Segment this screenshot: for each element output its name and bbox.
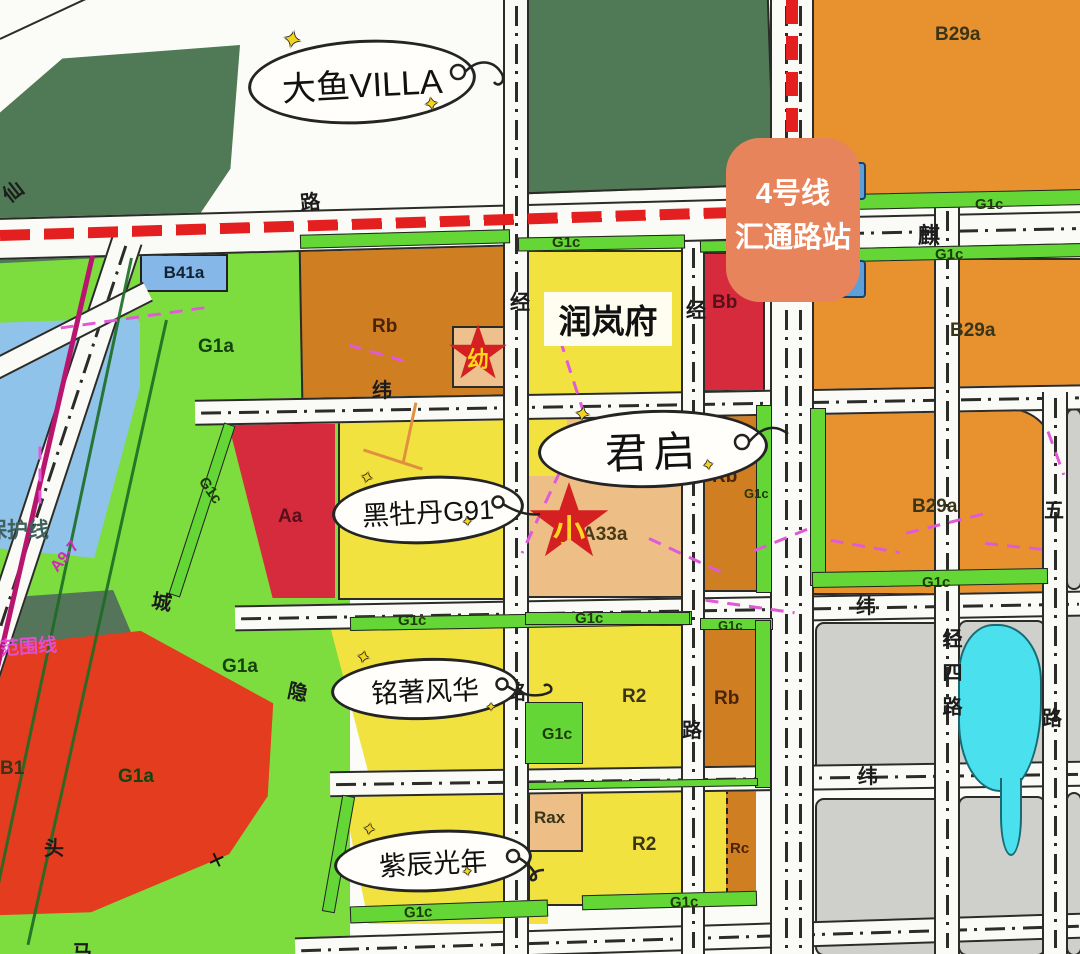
badge-line2: 汇通路站 <box>726 216 860 260</box>
road-char-jing-v1: 经 <box>510 286 530 315</box>
road-char-jing-v2: 经 <box>686 294 706 323</box>
bubble-dayu-villa-text: 大鱼VILLA <box>281 53 444 110</box>
parcel-label-r2-row4: R2 <box>632 834 656 856</box>
bubble-connector <box>490 490 546 526</box>
strip-label-g1c: G1c <box>975 196 1003 213</box>
note-fanweixian: 范围线 <box>0 630 58 661</box>
bubble-connector <box>494 668 556 708</box>
metro-station-badge: 4号线 汇通路站 <box>726 138 860 302</box>
road-char-lu-v5: 路 <box>1042 702 1062 731</box>
strip-g1c-r2-row3-top <box>525 612 690 625</box>
pond <box>958 624 1042 792</box>
road-char-wei-3: 纬 <box>858 760 878 789</box>
road-char-lu-v2: 路 <box>682 714 702 743</box>
parcel-label-g1a-mid: G1a <box>222 656 258 678</box>
road-v2 <box>681 242 705 954</box>
strip-g1c-b29a-row2-left <box>810 408 826 586</box>
parcel-label-b29a-top: B29a <box>935 24 980 46</box>
zoning-map: B41a <box>0 0 1080 954</box>
road-v5 <box>1042 392 1068 954</box>
bubble-mingzhu-text: 铭著风华 <box>370 668 479 711</box>
road-v1 <box>503 0 529 954</box>
strip-g1c-rb-row3-right <box>755 620 771 788</box>
metro-line4-dashes-north <box>786 0 798 146</box>
parcel-label-rb-topleft: Rb <box>372 316 397 338</box>
parcel-gray-sliver-row3 <box>1066 595 1080 771</box>
strip-label-g1c: G1c <box>404 904 433 922</box>
note-baohuxian: 保护线 <box>0 514 49 544</box>
label-box-runlanfu: 润岚府 <box>544 292 672 346</box>
bubble-connector <box>504 840 568 884</box>
parcel-label-rc: Rc <box>730 840 749 857</box>
strip-label-g1c: G1c <box>542 726 572 744</box>
parcel-label-g1a-top: G1a <box>198 336 234 358</box>
strip-label-g1c: G1c <box>575 610 603 627</box>
parcel-label-r2-row3: R2 <box>622 686 646 708</box>
bubble-connector <box>448 54 512 96</box>
road-name-jingsilu: 经四路 <box>936 628 965 730</box>
parcel-gray-sliver-row2 <box>1066 408 1080 590</box>
road-char-wu: 五 <box>1044 494 1064 523</box>
road-char-qi: 麒 <box>918 218 940 250</box>
strip-label-g1c: G1c <box>670 894 699 912</box>
parcel-gray-1 <box>815 622 950 774</box>
strip-label-g1c: G1c <box>398 612 426 629</box>
boundary-dash <box>39 447 42 507</box>
badge-line1: 4号线 <box>726 172 860 216</box>
road-centerline <box>515 6 518 948</box>
sparkle-icon: ✦ <box>423 93 441 116</box>
strip-label-g1c: G1c <box>922 574 950 591</box>
parcel-label-rax: Rax <box>534 808 565 828</box>
strip-label-g1c: G1c <box>744 486 769 501</box>
road-char-wei-1: 纬 <box>372 374 392 403</box>
road-char-tou: 头 <box>44 832 64 861</box>
parcel-label-rb-row3: Rb <box>714 688 739 710</box>
bubble-heimudan-text: 黑牡丹G91 <box>361 487 495 533</box>
road-char-ma: 马 <box>72 936 92 954</box>
road-centerline <box>1054 398 1057 948</box>
label-runlanfu-text: 润岚府 <box>559 295 658 343</box>
bubble-junqi-text: 君启 <box>604 417 702 481</box>
bubble-connector <box>732 418 792 458</box>
strip-label-g1c: G1c <box>718 618 743 633</box>
road-char-wei-2: 纬 <box>856 590 876 619</box>
strip-label-g1c: G1c <box>552 234 580 251</box>
parcel-label-bb: Bb <box>712 292 737 314</box>
sparkle-icon: ✦ <box>461 513 474 530</box>
parcel-label-b41a: B41a <box>164 263 205 283</box>
strip-g1c-runlanfu-top <box>518 235 685 252</box>
parcel-label-b29a-row1: B29a <box>950 320 995 342</box>
road-char-lu-h1: 路 <box>299 185 322 216</box>
parcel-label-g1a-low: G1a <box>118 766 154 788</box>
parcel-label-b29a-row2: B29a <box>912 496 957 518</box>
parcel-label-aa: Aa <box>278 506 302 528</box>
road-corner-line <box>0 0 116 40</box>
parcel-b41a: B41a <box>140 254 228 292</box>
sparkle-icon: ✦ <box>701 455 717 475</box>
parcel-label-b1: B1 <box>0 758 24 780</box>
road-centerline <box>692 248 695 948</box>
pond-tail <box>1000 778 1022 856</box>
